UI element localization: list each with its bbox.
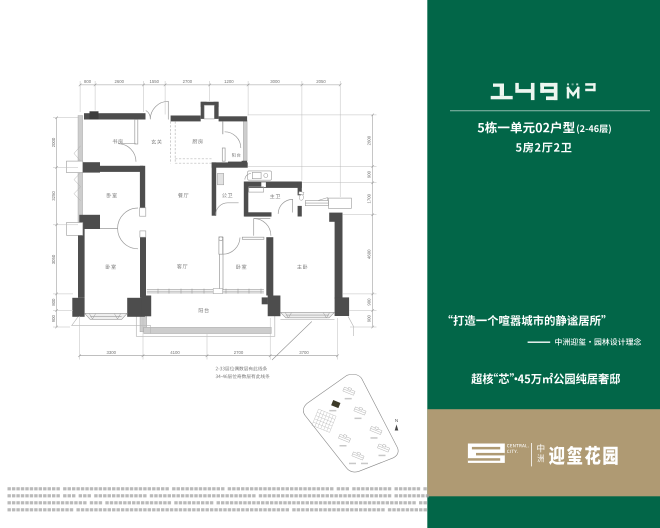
svg-text:2000: 2000 [51,137,56,147]
svg-text:900: 900 [367,298,372,306]
svg-text:3050: 3050 [51,254,56,264]
svg-text:1550: 1550 [150,79,160,84]
svg-text:3700: 3700 [299,350,309,355]
svg-text:N: N [395,418,398,423]
svg-text:900: 900 [367,170,372,178]
svg-text:800: 800 [51,298,56,306]
svg-text:1700: 1700 [367,193,372,203]
svg-text:900: 900 [367,315,372,323]
svg-text:2050: 2050 [316,79,326,84]
svg-text:3000: 3000 [270,79,280,84]
svg-text:3300: 3300 [107,350,117,355]
svg-text:800: 800 [84,79,92,84]
svg-text:2600: 2600 [367,135,372,145]
svg-text:2600: 2600 [115,79,125,84]
svg-text:3250: 3250 [51,191,56,201]
svg-text:2700: 2700 [183,79,193,84]
svg-text:2700: 2700 [234,350,244,355]
svg-text:4100: 4100 [170,350,180,355]
svg-text:4600: 4600 [367,249,372,259]
svg-text:1200: 1200 [224,79,234,84]
svg-text:900: 900 [51,315,56,323]
